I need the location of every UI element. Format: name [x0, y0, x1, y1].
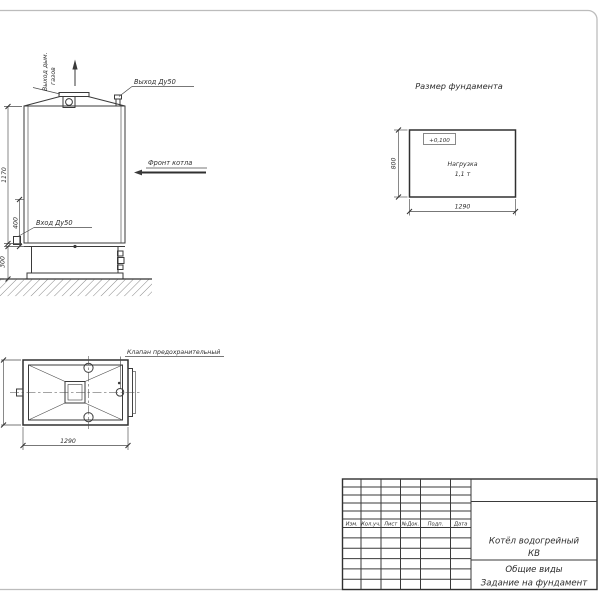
smoke-exit-label: газов — [50, 67, 57, 85]
doc-type-line2: Задание на фундамент — [481, 579, 588, 589]
load-value: 1,1 т — [455, 171, 471, 178]
dim-inlet-height: 400 — [13, 217, 20, 229]
product-name-line2: КВ — [528, 549, 540, 559]
outlet-label: Выход Ду50 — [134, 78, 176, 86]
col-izm: Изм. — [346, 521, 358, 527]
title-block: Изм. Кол.уч. Лист №Док. Подп. Дата Котёл… — [343, 479, 598, 590]
drawing-sheet-viewport: Выход дым. газов Выход Ду50 Фронт котла … — [0, 0, 600, 600]
dim-foundation-depth: 800 — [391, 158, 398, 170]
smoke-exit-label: Выход дым. — [42, 52, 49, 91]
col-podp: Подп. — [428, 521, 444, 527]
foundation-plan-title: Размер фундамента — [415, 81, 503, 91]
ground-hatch — [0, 280, 152, 297]
doc-type-line1: Общие виды — [505, 565, 562, 575]
dim-base-height: 300 — [0, 256, 7, 268]
dim-total-height: 1170 — [1, 167, 8, 183]
dim-foundation-width: 1290 — [455, 204, 471, 211]
inlet-label: Вход Ду50 — [36, 219, 73, 227]
col-data: Дата — [453, 521, 467, 527]
elevation-mark: +0,100 — [429, 138, 450, 144]
front-of-boiler-label: Фронт котла — [148, 159, 192, 167]
small-fitting-dot — [118, 382, 121, 385]
technical-drawing: Выход дым. газов Выход Ду50 Фронт котла … — [0, 0, 600, 600]
product-name-line1: Котёл водогрейный — [489, 537, 580, 547]
col-list: Лист — [383, 521, 398, 527]
dim-top-view-width: 1290 — [60, 438, 76, 445]
col-ndok: №Док. — [401, 521, 419, 527]
safety-valve-label: Клапан предохранительный — [127, 349, 220, 356]
load-label: Нагрузка — [447, 161, 477, 168]
col-koluch: Кол.уч. — [361, 521, 381, 527]
